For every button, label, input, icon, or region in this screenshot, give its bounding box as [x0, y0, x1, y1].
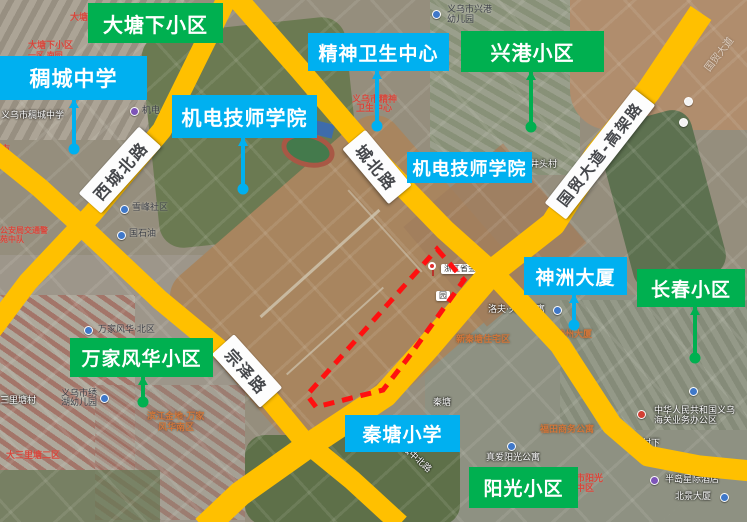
annotation-label-mental-health-center: 精神卫生中心: [308, 33, 449, 71]
annotation-label-changchun-estate: 长春小区: [637, 269, 745, 307]
pointer-dot-choucheng-middle-school: [69, 144, 80, 155]
target-parcel-dashed-outline: [307, 249, 464, 407]
annotation-label-choucheng-middle-school: 稠城中学: [0, 56, 147, 100]
pointer-arrow-xinggang-estate: [526, 71, 536, 80]
annotation-label-xinggang-estate: 兴港小区: [461, 31, 604, 72]
pointer-arrow-wanjia-fenghua-estate: [138, 376, 148, 385]
pointer-dot-wanjia-fenghua-estate: [138, 397, 149, 408]
pointer-arrow-shenzhou-tower: [569, 294, 579, 303]
annotation-label-qintang-primary-school: 秦塘小学: [345, 415, 460, 452]
pointer-arrow-changchun-estate: [690, 306, 700, 315]
pointer-dot-changchun-estate: [690, 353, 701, 364]
annotation-label-jidian-technician-college-2: 机电技师学院: [407, 152, 532, 183]
satellite-map[interactable]: 大塘下小区稠城中学机电技师学院精神卫生中心兴港小区机电技师学院神洲大厦长春小区万…: [0, 0, 747, 522]
pointer-arrow-jidian-technician-college-1: [238, 137, 248, 146]
pointer-arrow-mental-health-center: [372, 70, 382, 79]
pointer-arrow-choucheng-middle-school: [69, 99, 79, 108]
pointer-dot-mental-health-center: [372, 121, 383, 132]
pointer-dot-shenzhou-tower: [569, 320, 580, 331]
annotation-label-datangxia-estate: 大塘下小区: [88, 3, 223, 43]
pointer-dot-xinggang-estate: [526, 122, 537, 133]
annotation-label-jidian-technician-college-1: 机电技师学院: [172, 95, 317, 138]
pointer-dot-jidian-technician-college-1: [238, 184, 249, 195]
annotation-label-shenzhou-tower: 神洲大厦: [524, 257, 627, 295]
annotation-label-yangguang-estate: 阳光小区: [469, 467, 578, 508]
annotation-label-wanjia-fenghua-estate: 万家风华小区: [70, 338, 213, 377]
